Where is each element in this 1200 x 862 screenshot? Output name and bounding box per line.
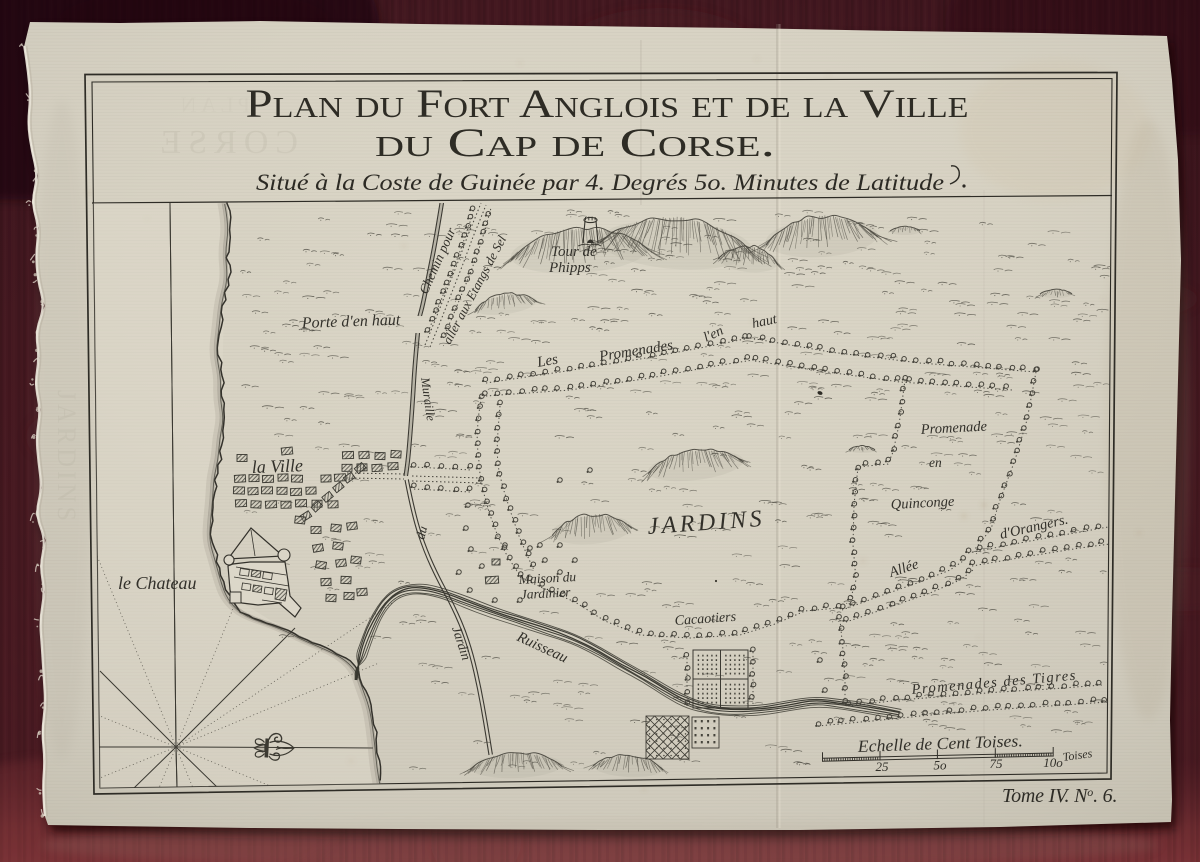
svg-text:Porte d'en haut: Porte d'en haut (301, 312, 402, 332)
svg-text:la Ville: la Ville (251, 455, 303, 477)
svg-text:en: en (929, 455, 942, 470)
svg-text:Quinconge: Quinconge (890, 494, 955, 513)
svg-text:Jardinier: Jardinier (520, 584, 571, 602)
svg-text:10o: 10o (1043, 755, 1063, 770)
svg-text:5o: 5o (934, 758, 948, 773)
svg-text:25: 25 (876, 759, 890, 774)
svg-text:Situé à la Coste de Guinée par: Situé à la Coste de Guinée par 4. Degrés… (256, 170, 944, 196)
svg-text:le Chateau: le Chateau (118, 573, 197, 593)
svg-text:JARDINS: JARDINS (52, 390, 81, 525)
svg-text:PLAN: PLAN (177, 92, 250, 117)
svg-text:du Cap de Corse.: du Cap de Corse. (375, 120, 775, 165)
svg-text:75: 75 (990, 756, 1004, 771)
svg-text:Tour de: Tour de (551, 244, 597, 260)
svg-text:Tome IV. No. 6.: Tome IV. No. 6. (1002, 785, 1117, 807)
svg-text:Phipps: Phipps (548, 260, 591, 276)
svg-text:CORSE: CORSE (153, 124, 298, 161)
